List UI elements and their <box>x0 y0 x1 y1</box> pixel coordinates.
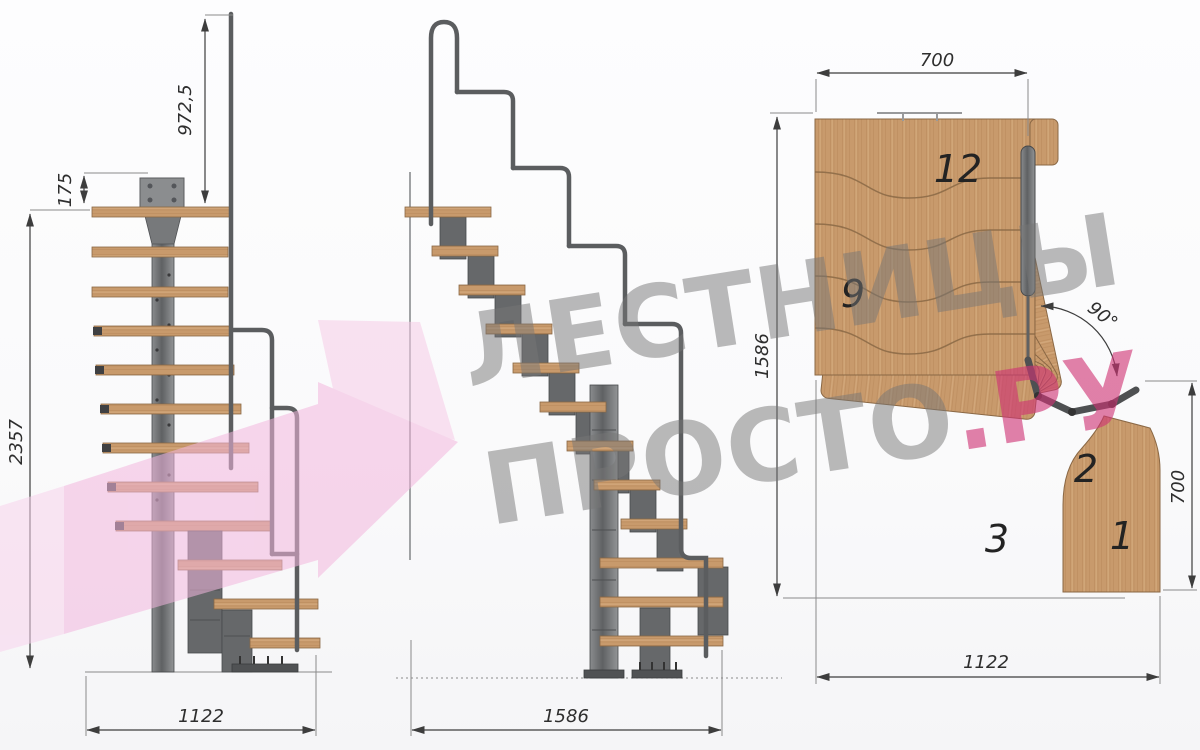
front-funnel-bracket <box>145 216 181 244</box>
technical-drawing-canvas: 2357 175 972,5 1122 <box>0 0 1200 750</box>
side-main-column <box>590 385 618 678</box>
plan-tread-1 <box>1063 416 1160 592</box>
dim-label-top-offset: 175 <box>55 173 76 207</box>
step-label-2: 2 <box>1074 447 1098 491</box>
dim-label-front-width: 1122 <box>178 706 224 727</box>
front-mounting-plate <box>140 178 184 208</box>
plan-view: 12 9 3 2 1 700 1586 700 1122 90° <box>752 50 1197 684</box>
dim-label-side-length: 1586 <box>543 706 589 727</box>
step-label-12: 12 <box>934 147 982 191</box>
step-label-9: 9 <box>841 272 865 316</box>
dim-label-plan-bottom: 1122 <box>963 652 1009 673</box>
side-treads <box>405 207 723 646</box>
dim-label-turn-angle: 90° <box>1083 298 1121 334</box>
dim-label-plan-right: 700 <box>1168 470 1189 504</box>
step-label-1: 1 <box>1110 514 1134 558</box>
dim-label-rail-height: 972,5 <box>175 84 196 136</box>
plan-landing-block <box>815 119 1035 375</box>
dim-label-plan-left: 1586 <box>752 333 773 379</box>
front-base-plate <box>232 664 298 672</box>
side-dimensions: 1586 <box>411 640 722 736</box>
side-elevation-view: 1586 <box>396 22 782 736</box>
staircase-drawing: 2357 175 972,5 1122 <box>0 0 1200 750</box>
step-label-3: 3 <box>985 517 1009 561</box>
dim-label-total-height: 2357 <box>6 419 27 465</box>
dim-label-plan-top: 700 <box>920 50 954 71</box>
